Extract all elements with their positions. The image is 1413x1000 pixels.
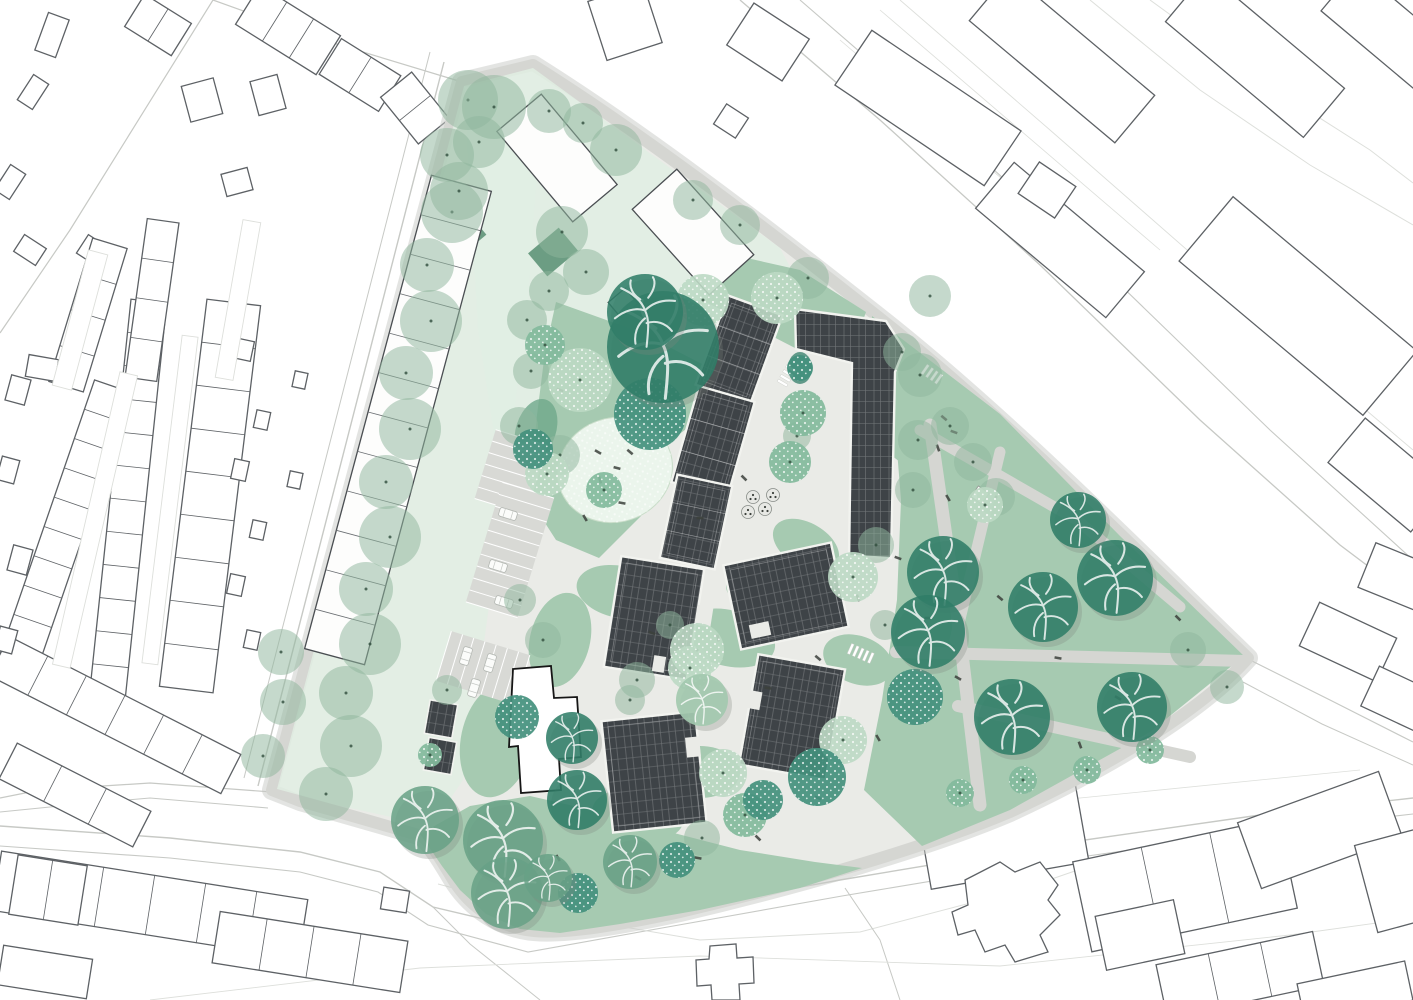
context-building [287, 471, 303, 489]
context-building [231, 459, 250, 482]
tree-teal-stipple [887, 669, 943, 725]
tree-sage [1170, 632, 1206, 668]
context-building [25, 355, 58, 382]
context-building [0, 456, 20, 484]
tree-pale-stipple [699, 749, 747, 797]
context-building [292, 371, 308, 389]
context-building [727, 3, 810, 81]
tree-sage [319, 666, 373, 720]
tree-teal-stipple [788, 748, 846, 806]
tree-stipple [946, 779, 974, 807]
planter [742, 506, 755, 519]
context-building [236, 0, 341, 75]
context-building [250, 74, 286, 115]
tree-stipple [586, 472, 622, 508]
tree-sage [359, 506, 421, 568]
context-building [17, 75, 48, 110]
tree-sage [615, 685, 645, 715]
bike-shed [424, 700, 457, 738]
context-building [14, 235, 47, 266]
tree-teal-stipple [659, 842, 695, 878]
context-building [1355, 827, 1413, 932]
tree-sage [260, 679, 306, 725]
tree-sage [432, 675, 462, 705]
tree-sage [504, 584, 536, 616]
context-building [5, 375, 31, 405]
context-building [249, 520, 266, 541]
tree-sage [400, 238, 454, 292]
tree-sage [590, 124, 642, 176]
tree-pale-stipple [967, 487, 1003, 523]
context-building [221, 167, 253, 196]
context-building [714, 104, 749, 138]
tree-teal-stipple [495, 695, 539, 739]
context-building [9, 855, 88, 925]
building-notch [652, 655, 666, 673]
context-building [835, 30, 1021, 185]
context-building [380, 887, 409, 913]
tree-sage [379, 398, 441, 460]
tree-pale-stipple [751, 272, 803, 324]
context-building [181, 78, 222, 122]
tree-sage [563, 249, 609, 295]
context-building [212, 911, 408, 992]
context-building [1165, 0, 1344, 137]
masterplan-canvas [0, 0, 1413, 1000]
tree-sage [258, 629, 304, 675]
courtyard-block-f [601, 711, 706, 832]
tree-stipple [525, 325, 565, 365]
tree-stipple [780, 390, 826, 436]
building-notch [685, 736, 701, 757]
tree-sage [673, 180, 713, 220]
context-building [0, 945, 93, 999]
tree-sage [359, 455, 413, 509]
tree-sage [931, 407, 969, 445]
site-plan-svg [0, 0, 1413, 1000]
tree-teal-stipple [513, 429, 553, 469]
tree-stipple [418, 743, 442, 767]
context-building [1328, 418, 1413, 532]
context-building [253, 410, 270, 431]
tree-sage [379, 346, 433, 400]
tree-pale-stipple [828, 552, 878, 602]
tree-sage [895, 472, 931, 508]
tree-sage [1210, 670, 1244, 704]
tree-sage [909, 275, 951, 317]
context-building [1179, 197, 1413, 416]
planter [759, 503, 772, 516]
context-building [696, 944, 754, 1000]
context-building [588, 0, 662, 60]
planter [747, 491, 760, 504]
tree-sage [430, 162, 488, 220]
tree-sage [453, 116, 505, 168]
tree-teal-stipple [787, 355, 813, 381]
tree-teal-stipple [743, 780, 783, 820]
tree-sage [525, 622, 561, 658]
context-building [0, 165, 26, 200]
context-building [35, 12, 69, 57]
tree-sage [241, 734, 285, 778]
tree-sage [339, 562, 393, 616]
tree-sage [954, 443, 992, 481]
planter [767, 489, 780, 502]
tree-stipple [1073, 756, 1101, 784]
context-building [243, 630, 260, 651]
context-building [1321, 0, 1413, 88]
tree-sage [400, 290, 462, 352]
tree-sage [299, 767, 353, 821]
bench [697, 517, 704, 520]
context-building [125, 0, 192, 56]
context-building [1358, 543, 1413, 617]
context-building [227, 574, 246, 597]
tree-sage [720, 205, 760, 245]
tree-sage [883, 333, 921, 371]
road-line [845, 888, 900, 1000]
tree-stipple [1009, 766, 1037, 794]
tree-sage [339, 613, 401, 675]
tree-stipple [769, 441, 811, 483]
